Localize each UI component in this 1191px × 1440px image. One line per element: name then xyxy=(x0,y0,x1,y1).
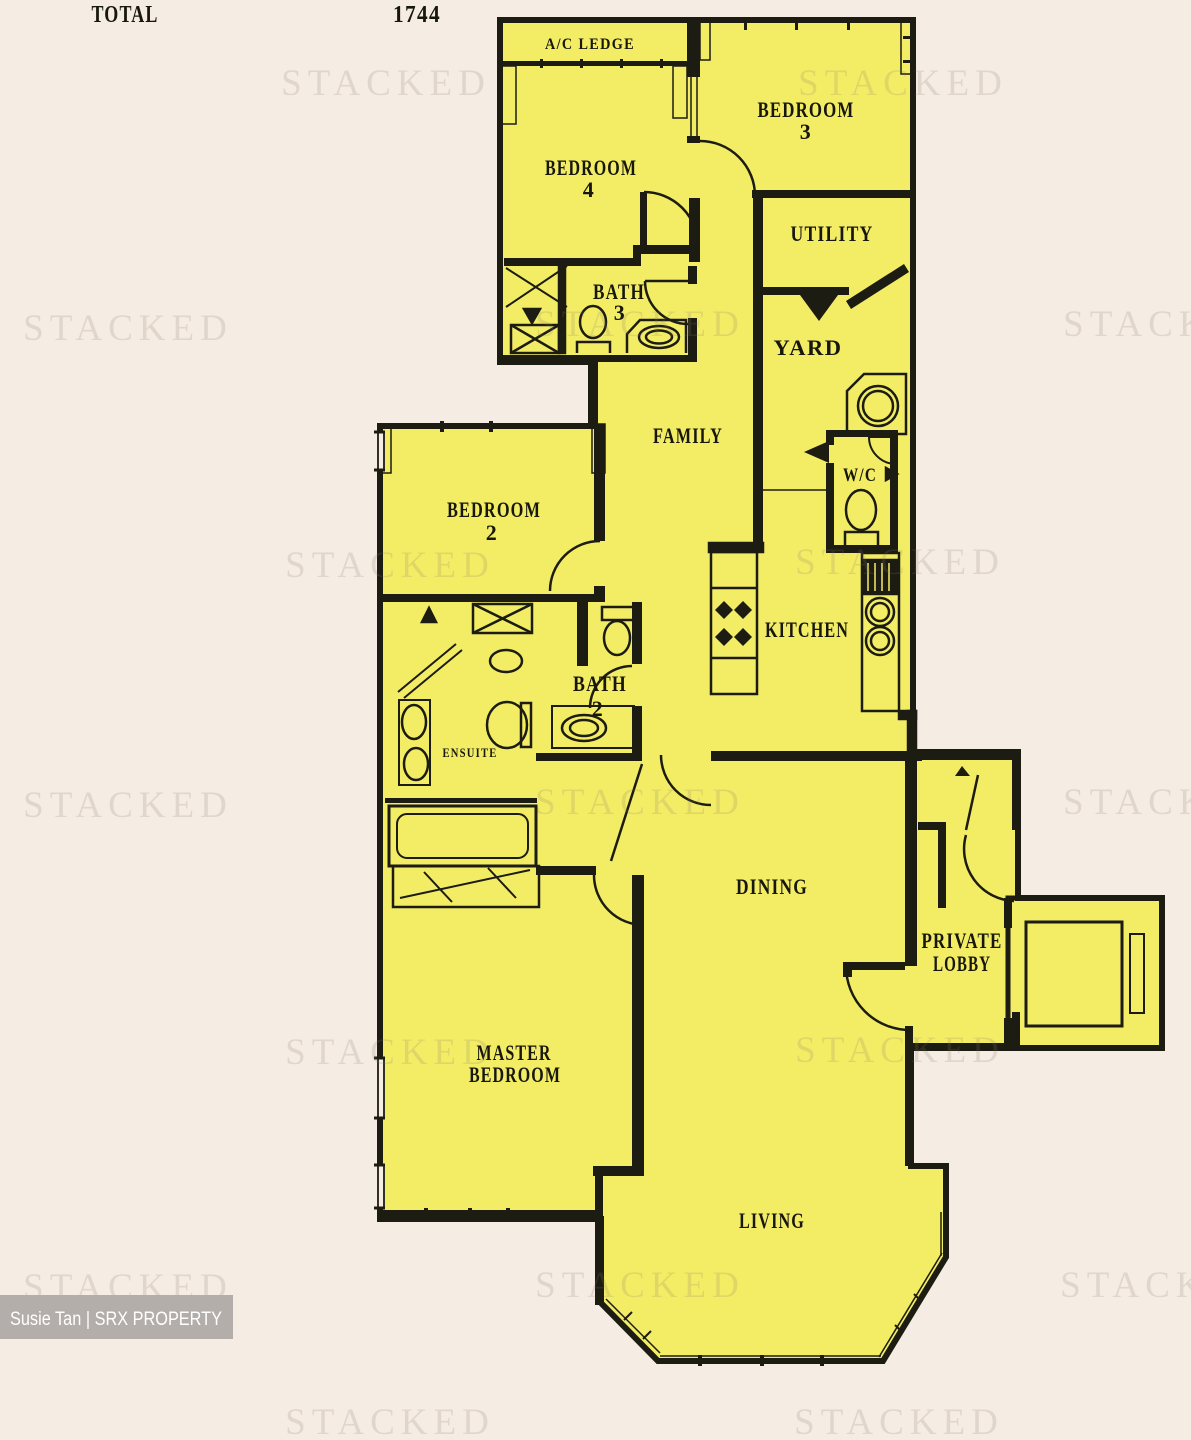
svg-text:STACKED: STACKED xyxy=(285,545,495,586)
svg-text:STACKED: STACKED xyxy=(23,308,233,349)
svg-text:PRIVATE: PRIVATE xyxy=(922,928,1003,953)
svg-text:LOBBY: LOBBY xyxy=(933,951,991,976)
svg-text:STACKED: STACKED xyxy=(795,1030,1005,1071)
svg-text:FAMILY: FAMILY xyxy=(653,423,723,448)
svg-text:STACKED: STACKED xyxy=(23,785,233,826)
svg-text:STACKED: STACKED xyxy=(535,1265,745,1306)
svg-text:STACKED: STACKED xyxy=(535,304,745,345)
svg-text:Susie Tan | SRX PROPERTY: Susie Tan | SRX PROPERTY xyxy=(10,1309,222,1330)
svg-text:DINING: DINING xyxy=(736,874,808,899)
svg-text:STACKED: STACKED xyxy=(281,63,491,104)
svg-text:W/C: W/C xyxy=(843,465,877,486)
svg-text:STACKED: STACKED xyxy=(1060,1265,1191,1306)
svg-text:STACKED: STACKED xyxy=(798,63,1008,104)
svg-text:ENSUITE: ENSUITE xyxy=(443,745,498,760)
svg-text:STACKED: STACKED xyxy=(795,542,1005,583)
svg-text:TOTAL: TOTAL xyxy=(92,2,159,28)
svg-text:STACKED: STACKED xyxy=(535,782,745,823)
svg-text:2: 2 xyxy=(592,696,605,721)
svg-text:BEDROOM: BEDROOM xyxy=(447,497,541,522)
svg-text:STACKED: STACKED xyxy=(285,1032,495,1073)
svg-text:STACKED: STACKED xyxy=(285,1402,495,1440)
svg-text:STACKED: STACKED xyxy=(1063,304,1191,345)
svg-text:YARD: YARD xyxy=(774,335,843,360)
svg-text:2: 2 xyxy=(486,520,499,545)
svg-text:KITCHEN: KITCHEN xyxy=(765,617,849,642)
svg-text:3: 3 xyxy=(800,119,813,144)
svg-text:STACKED: STACKED xyxy=(794,1402,1004,1440)
svg-text:BATH: BATH xyxy=(573,671,627,696)
svg-text:1744: 1744 xyxy=(393,2,441,28)
svg-text:UTILITY: UTILITY xyxy=(791,221,874,246)
svg-text:LIVING: LIVING xyxy=(739,1208,805,1233)
svg-text:STACKED: STACKED xyxy=(1063,782,1191,823)
svg-text:4: 4 xyxy=(583,177,596,202)
svg-text:A/C LEDGE: A/C LEDGE xyxy=(545,36,635,53)
